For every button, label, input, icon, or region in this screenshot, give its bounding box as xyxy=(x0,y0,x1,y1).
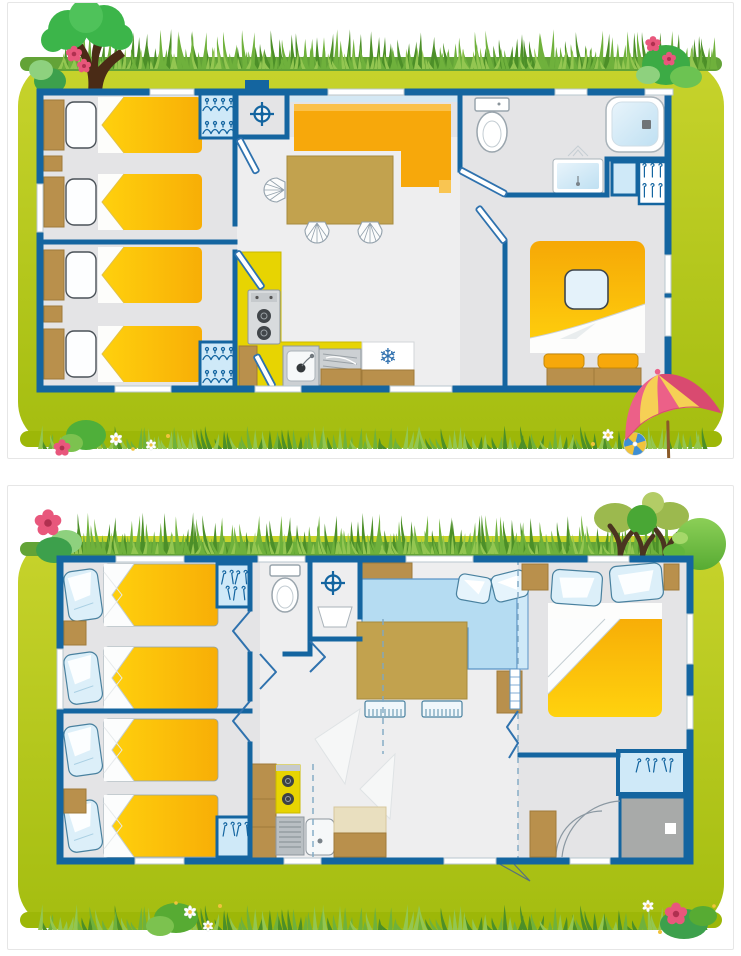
fridge: ❄ xyxy=(362,342,414,370)
pillow xyxy=(565,270,608,309)
kitchen-cabinet xyxy=(334,833,386,857)
shower-drain xyxy=(665,823,676,834)
window-light xyxy=(290,96,458,102)
small-flower xyxy=(166,434,170,438)
fridge-snowflake-icon: ❄ xyxy=(379,345,397,370)
shower xyxy=(620,797,685,859)
floorplan-2-illustration xyxy=(8,486,733,949)
shower xyxy=(606,97,664,152)
gas-hob xyxy=(276,765,300,813)
hanger-wardrobe xyxy=(217,564,250,607)
sofa-armrest xyxy=(439,180,451,193)
small-flower xyxy=(591,442,595,446)
tree-foliage xyxy=(41,3,133,52)
hanger-wardrobe xyxy=(200,342,237,387)
kitchen-cabinet xyxy=(239,346,257,386)
hanger-closet xyxy=(639,162,666,204)
nightstand xyxy=(522,564,548,590)
worktop xyxy=(334,807,386,833)
small-flower xyxy=(174,901,178,905)
kitchen-cabinet xyxy=(252,764,276,859)
wall-shelf xyxy=(362,563,412,580)
toilet xyxy=(475,98,509,152)
floorplan-1: ❄ xyxy=(37,80,673,392)
wc xyxy=(270,565,300,612)
small-flower xyxy=(131,447,135,451)
hanger-wardrobe xyxy=(217,817,250,857)
shelf-strip xyxy=(510,669,520,709)
washbasin xyxy=(318,607,352,627)
nightstand xyxy=(44,306,62,322)
nightstand xyxy=(664,564,679,590)
shower-drain xyxy=(642,120,651,129)
kitchen-cabinet xyxy=(321,369,361,386)
small-flower xyxy=(218,904,222,908)
floorplan-2 xyxy=(57,556,693,881)
pillow xyxy=(551,569,603,606)
cabinet xyxy=(530,811,556,857)
floorplan-card-1: ❄ xyxy=(7,2,734,459)
nightstand xyxy=(64,789,86,813)
small-flower xyxy=(712,904,716,908)
hanger-wardrobe xyxy=(200,94,237,138)
sink xyxy=(283,346,319,386)
bathroom-niche xyxy=(612,162,637,195)
floorplan-card-2 xyxy=(7,485,734,950)
page: ❄ xyxy=(0,0,741,950)
floorplan-1-illustration: ❄ xyxy=(8,3,733,458)
nightstand xyxy=(64,621,86,645)
bed-sheet xyxy=(548,603,662,619)
dining-table xyxy=(357,622,467,699)
gas-hob xyxy=(248,290,280,344)
vent-tab xyxy=(245,80,269,92)
dining-table xyxy=(287,156,393,224)
cushion xyxy=(455,573,492,604)
pillow xyxy=(609,562,664,602)
sofa-backrest xyxy=(294,104,451,111)
small-flower xyxy=(658,930,662,934)
hanger-wardrobe xyxy=(618,751,685,794)
nightstand xyxy=(44,156,62,171)
